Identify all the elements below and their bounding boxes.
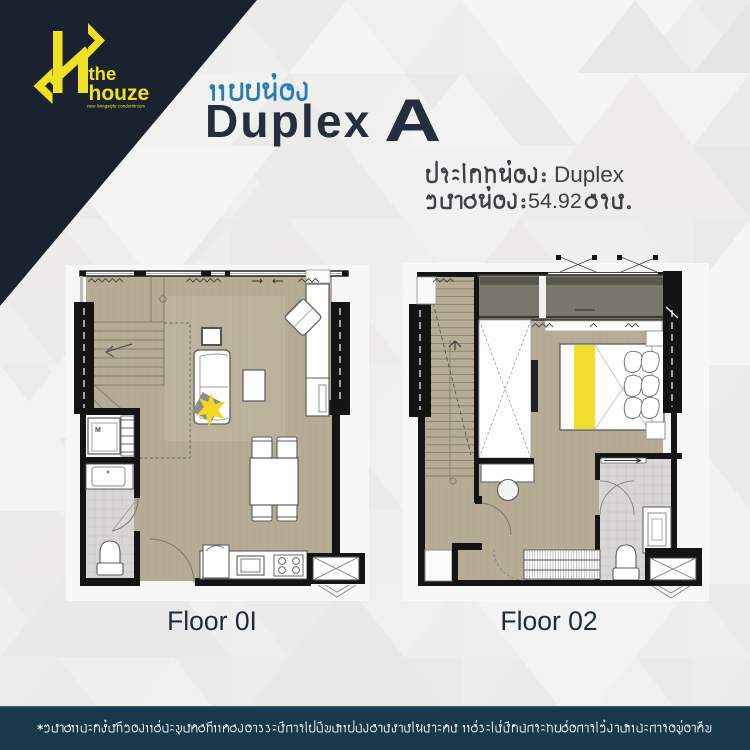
svg-text:Duplex: Duplex [205, 95, 372, 147]
svg-text:A: A [384, 86, 441, 153]
svg-text:new livingstyle condominium: new livingstyle condominium [87, 104, 145, 109]
svg-text:Floor 02: Floor 02 [500, 606, 597, 636]
svg-text:houze: houze [89, 82, 150, 105]
svg-text:Floor 0I: Floor 0I [167, 606, 257, 636]
svg-text:the: the [89, 63, 117, 84]
svg-text:M: M [95, 427, 101, 434]
svg-text:Duplex: Duplex [554, 162, 625, 187]
svg-text:54.92: 54.92 [528, 189, 582, 213]
